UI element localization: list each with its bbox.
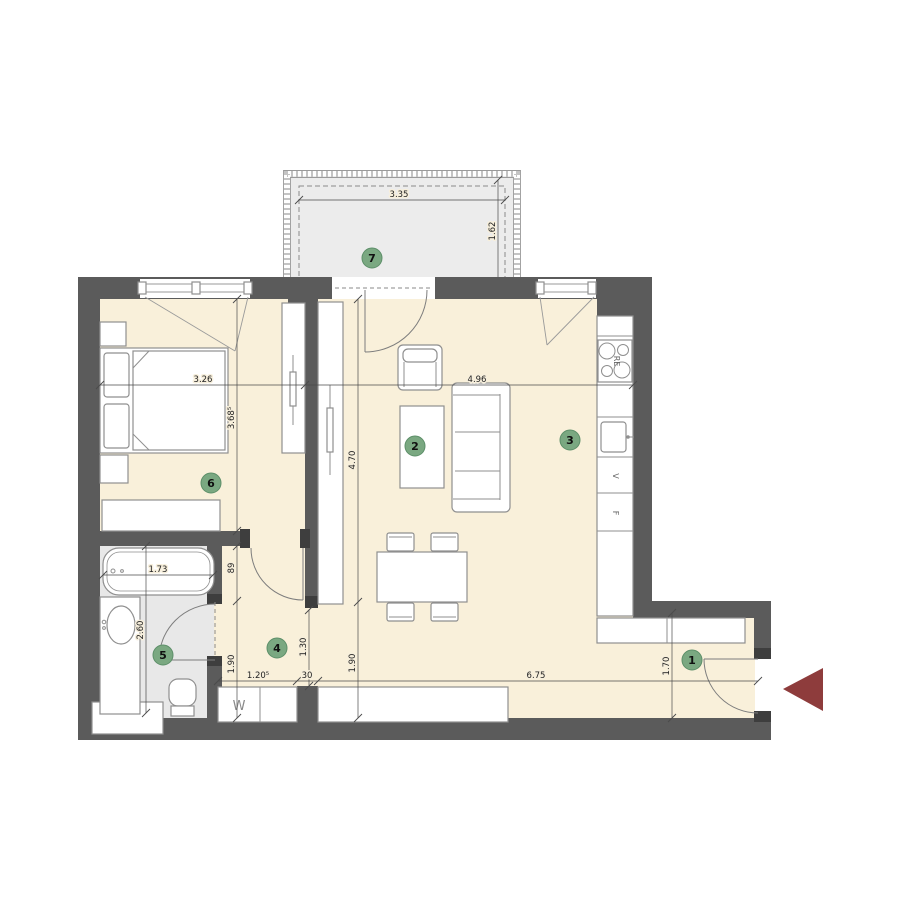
room-badge-2: 2 xyxy=(405,436,425,456)
dim-bottom-span: 6.75 xyxy=(527,671,546,681)
wall-kitchen-stub xyxy=(597,299,633,316)
washer-closet xyxy=(218,687,297,722)
nightstand xyxy=(100,322,126,346)
dim-balcony-width: 3.35 xyxy=(390,190,409,200)
room-badge-1: 1 xyxy=(682,650,702,670)
dishwasher-label: V xyxy=(611,473,620,479)
room-badge-5: 5 xyxy=(153,645,173,665)
kitchen-sink xyxy=(601,422,626,452)
room-number-4: 4 xyxy=(273,642,281,655)
hall-closet xyxy=(318,687,508,722)
pillow xyxy=(104,404,129,448)
wall-central xyxy=(305,299,318,608)
wall-entry-top xyxy=(633,601,771,618)
armchair-back xyxy=(403,349,437,362)
chair xyxy=(387,533,414,551)
dim-bedroom-width: 3.26 xyxy=(194,375,213,385)
stove-label: RE xyxy=(612,356,621,367)
jamb xyxy=(754,648,771,659)
dim-living-lower: 1.90 xyxy=(348,654,358,673)
dim-entry-height: 1.70 xyxy=(662,657,672,676)
jamb xyxy=(207,656,222,666)
room-number-7: 7 xyxy=(368,252,376,265)
wall-pillar xyxy=(297,686,318,730)
room-number-1: 1 xyxy=(688,654,696,667)
dim-bath-height: 2.60 xyxy=(136,621,146,640)
bed-mattress xyxy=(133,351,225,450)
entry-closet xyxy=(597,618,745,643)
dresser xyxy=(102,500,220,531)
room-number-6: 6 xyxy=(207,477,215,490)
room-number-5: 5 xyxy=(159,649,167,662)
toilet-seat xyxy=(169,679,196,706)
chair xyxy=(387,603,414,621)
kitchen: RE V F xyxy=(597,316,634,616)
wall-left xyxy=(78,277,100,740)
dining-table xyxy=(377,552,467,602)
wall-right xyxy=(633,277,652,620)
bathroom-sink xyxy=(107,606,135,644)
toilet-tank xyxy=(171,706,194,716)
dim-hall-lower: 1.90 xyxy=(227,655,237,674)
wall-bedroom-divider xyxy=(78,531,250,546)
room-number-3: 3 xyxy=(566,434,574,447)
room-badge-6: 6 xyxy=(201,473,221,493)
room-number-2: 2 xyxy=(411,440,419,453)
room-badge-7: 7 xyxy=(362,248,382,268)
jamb xyxy=(305,596,318,608)
fridge-label: F xyxy=(611,511,620,516)
dim-bedroom-depth: 3.68⁵ xyxy=(227,407,237,429)
chair xyxy=(431,603,458,621)
sofa xyxy=(452,383,510,512)
jamb xyxy=(240,529,250,548)
wardrobe-handle xyxy=(290,372,296,406)
dim-closet-width: 1.20⁵ xyxy=(247,671,269,681)
washer-label: W xyxy=(233,699,246,714)
entry-arrow-icon xyxy=(783,668,823,711)
floor-plan-page: 3.35 1.62 xyxy=(0,0,901,901)
wardrobe-handle xyxy=(327,408,333,452)
dim-bath-width: 1.73 xyxy=(149,565,168,575)
dim-pillar-width: 30 xyxy=(302,671,313,681)
kitchen-window xyxy=(538,279,596,298)
dim-living-height: 4.70 xyxy=(348,451,358,470)
pillow xyxy=(104,353,129,397)
jamb xyxy=(300,529,310,548)
floor-plan-drawing: 3.35 1.62 xyxy=(0,0,901,901)
dim-balcony-depth: 1.62 xyxy=(488,222,498,241)
dim-living-width: 4.96 xyxy=(468,375,487,385)
room-badge-3: 3 xyxy=(560,430,580,450)
dim-hall-opening: 1.30 xyxy=(299,638,309,657)
room-badge-4: 4 xyxy=(267,638,287,658)
dim-hall-upper: 89 xyxy=(227,563,237,574)
balcony: 3.35 1.62 xyxy=(284,171,521,291)
chair xyxy=(431,533,458,551)
nightstand xyxy=(100,455,128,483)
